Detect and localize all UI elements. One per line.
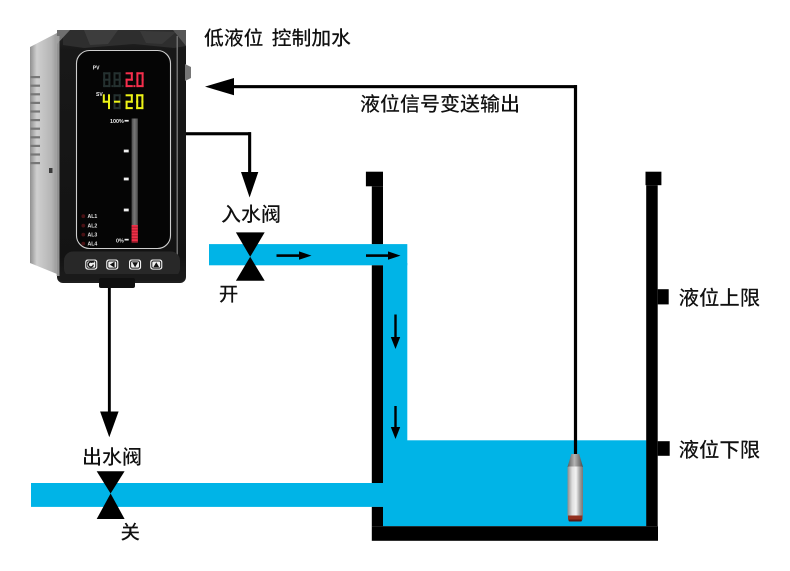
svg-text:AL3: AL3 bbox=[88, 232, 98, 238]
svg-text:AL1: AL1 bbox=[88, 214, 98, 220]
svg-text:SV: SV bbox=[96, 92, 103, 98]
svg-text:AL4: AL4 bbox=[88, 241, 98, 247]
svg-text:AL2: AL2 bbox=[88, 223, 98, 229]
svg-text:0%: 0% bbox=[116, 239, 124, 245]
svg-text:PV: PV bbox=[93, 66, 100, 72]
svg-text:100%: 100% bbox=[110, 119, 124, 125]
